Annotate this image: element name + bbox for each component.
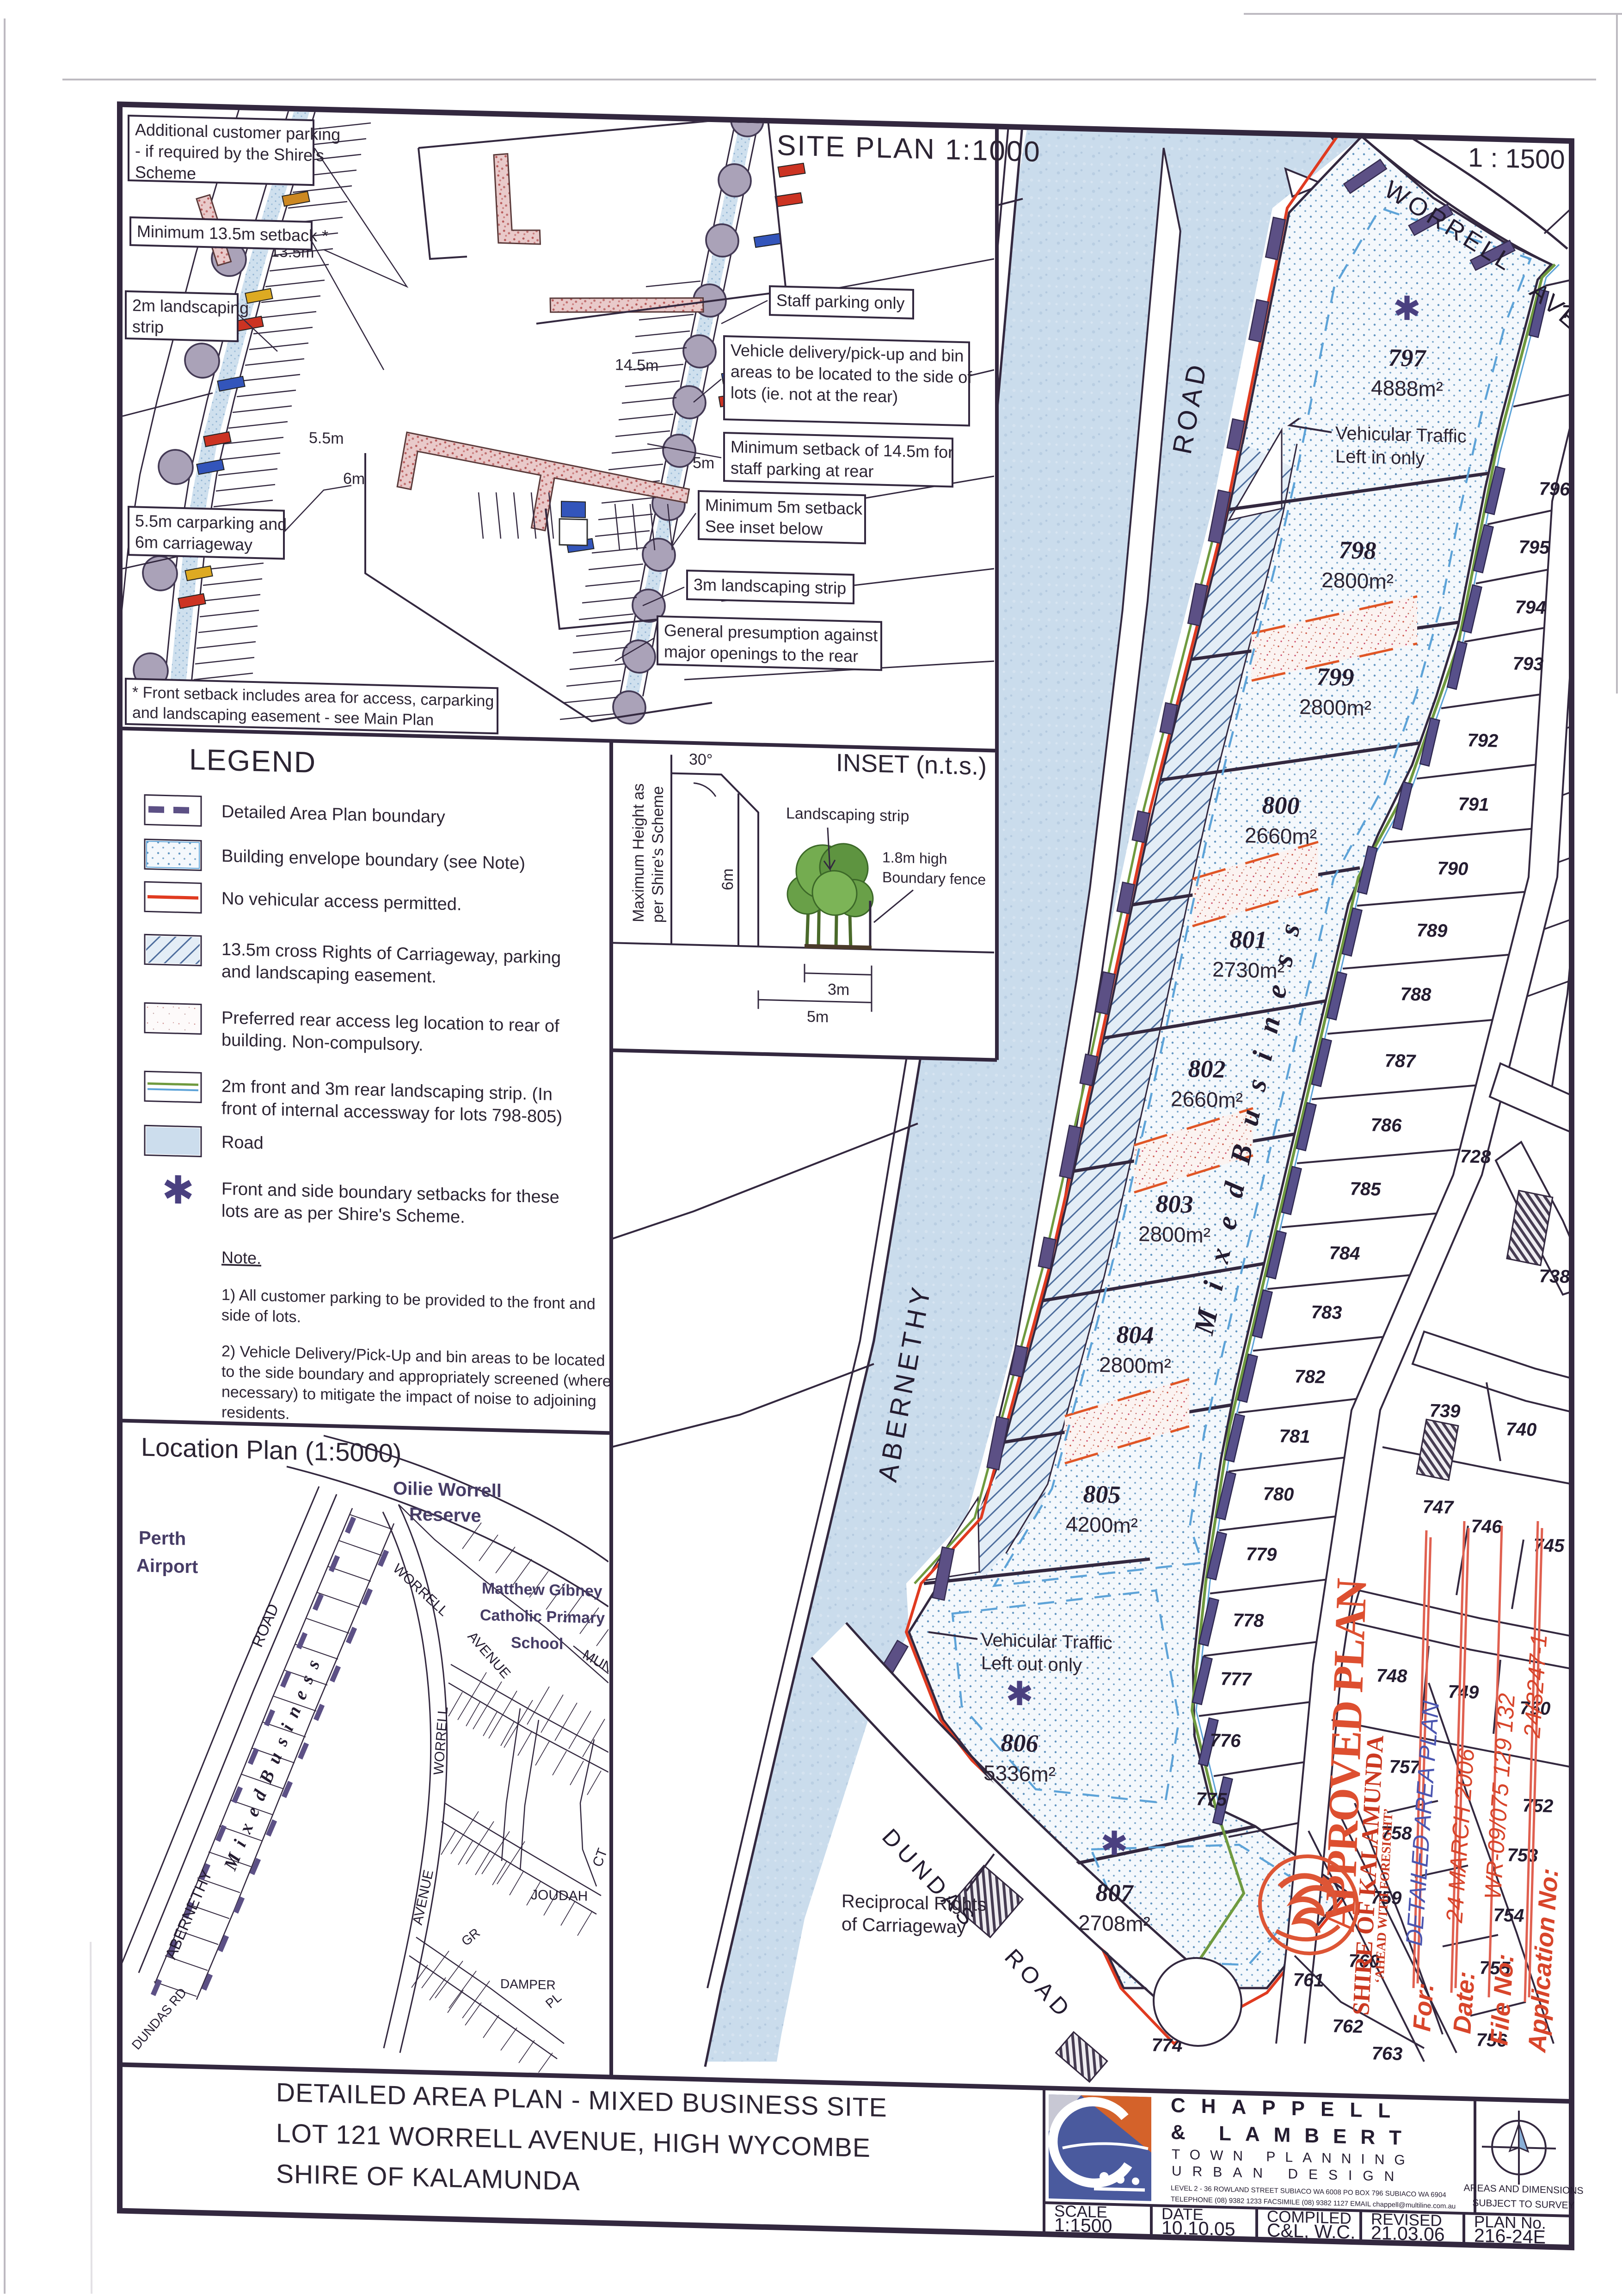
svg-text:802: 802 — [1188, 1055, 1226, 1083]
svg-text:775: 775 — [1196, 1789, 1227, 1810]
svg-text:796: 796 — [1539, 479, 1570, 500]
svg-text:Matthew Gibney: Matthew Gibney — [482, 1579, 602, 1600]
svg-text:Catholic Primary: Catholic Primary — [480, 1606, 605, 1627]
svg-text:DAMPER: DAMPER — [500, 1977, 556, 1992]
svg-text:Note.: Note. — [221, 1248, 261, 1268]
svg-text:Maximum Height as: Maximum Height as — [630, 783, 647, 922]
svg-text:1.8m high: 1.8m high — [882, 849, 947, 867]
svg-text:793: 793 — [1513, 653, 1544, 675]
svg-text:2660m²: 2660m² — [1245, 823, 1317, 849]
svg-text:30°: 30° — [689, 750, 713, 768]
svg-text:2800m²: 2800m² — [1321, 568, 1394, 594]
svg-text:782: 782 — [1295, 1366, 1326, 1387]
svg-text:792: 792 — [1468, 730, 1499, 751]
svg-text:781: 781 — [1279, 1426, 1310, 1447]
svg-text:side of lots.: side of lots. — [221, 1307, 301, 1326]
svg-text:Staff parking only: Staff parking only — [776, 290, 904, 313]
svg-text:21.03.06: 21.03.06 — [1371, 2222, 1445, 2245]
svg-text:Minimum 5m setback: Minimum 5m setback — [705, 495, 863, 518]
svg-text:728: 728 — [1460, 1146, 1491, 1167]
svg-text:5336m²: 5336m² — [983, 1761, 1056, 1786]
svg-text:Road: Road — [221, 1133, 264, 1153]
svg-text:777: 777 — [1221, 1669, 1252, 1690]
svg-text:staff parking at rear: staff parking at rear — [731, 458, 873, 481]
svg-text:787: 787 — [1385, 1050, 1416, 1072]
svg-text:Vehicular Traffic: Vehicular Traffic — [981, 1630, 1112, 1653]
svg-text:LEGEND: LEGEND — [189, 743, 316, 779]
svg-text:2708m²: 2708m² — [1078, 1910, 1150, 1936]
svg-text:748: 748 — [1376, 1665, 1407, 1687]
svg-text:14.5m: 14.5m — [615, 356, 658, 374]
svg-text:4888m²: 4888m² — [1371, 375, 1443, 401]
svg-text:790: 790 — [1438, 858, 1468, 879]
svg-text:2800m²: 2800m² — [1138, 1222, 1210, 1247]
svg-text:Left out only: Left out only — [981, 1653, 1082, 1676]
svg-text:805: 805 — [1083, 1480, 1121, 1509]
svg-text:2800m²: 2800m² — [1099, 1352, 1171, 1378]
svg-text:2660m²: 2660m² — [1171, 1087, 1243, 1112]
svg-text:739: 739 — [1430, 1400, 1461, 1422]
svg-text:746: 746 — [1471, 1516, 1502, 1537]
svg-text:795: 795 — [1519, 537, 1550, 558]
svg-text:6m carriageway: 6m carriageway — [135, 532, 252, 554]
svg-text:798: 798 — [1339, 536, 1376, 565]
svg-text:794: 794 — [1515, 597, 1546, 618]
svg-text:5.5m: 5.5m — [309, 429, 344, 448]
svg-text:747: 747 — [1423, 1497, 1454, 1518]
svg-text:779: 779 — [1246, 1544, 1277, 1565]
svg-text:5m: 5m — [693, 454, 714, 472]
svg-text:Perth: Perth — [139, 1528, 186, 1549]
svg-text:Oilie Worrell: Oilie Worrell — [393, 1478, 502, 1501]
svg-text:See inset below: See inset below — [705, 516, 823, 538]
svg-text:6m: 6m — [719, 868, 737, 890]
svg-text:801: 801 — [1230, 925, 1267, 954]
svg-text:For:: For: — [1408, 1982, 1439, 2032]
svg-text:754: 754 — [1493, 1905, 1524, 1926]
svg-text:Left in only: Left in only — [1335, 446, 1425, 469]
svg-text:SITE PLAN 1:1000: SITE PLAN 1:1000 — [777, 129, 1041, 168]
svg-text:4200m²: 4200m² — [1066, 1512, 1138, 1538]
svg-text:780: 780 — [1263, 1484, 1294, 1505]
svg-text:Scheme: Scheme — [135, 162, 196, 183]
svg-text:5.5m carparking and: 5.5m carparking and — [135, 511, 287, 534]
svg-text:JOUDAH: JOUDAH — [531, 1887, 588, 1904]
svg-text:2800m²: 2800m² — [1299, 694, 1371, 720]
svg-text:C&L, W.C.: C&L, W.C. — [1267, 2219, 1355, 2243]
svg-text:1 : 1500: 1 : 1500 — [1468, 142, 1565, 175]
svg-text:Vehicular Traffic: Vehicular Traffic — [1335, 423, 1467, 447]
svg-text:778: 778 — [1233, 1610, 1264, 1631]
svg-text:Date:: Date: — [1448, 1970, 1480, 2035]
svg-text:791: 791 — [1458, 794, 1489, 815]
svg-text:738: 738 — [1539, 1266, 1570, 1287]
svg-text:797: 797 — [1389, 344, 1427, 372]
svg-text:785: 785 — [1350, 1179, 1381, 1200]
svg-text:✱: ✱ — [1100, 1825, 1128, 1863]
svg-text:3m: 3m — [828, 981, 849, 999]
svg-text:803: 803 — [1156, 1190, 1193, 1218]
svg-text:807: 807 — [1096, 1879, 1134, 1907]
svg-text:Airport: Airport — [136, 1555, 198, 1577]
svg-text:of Carriageway: of Carriageway — [842, 1914, 966, 1938]
svg-text:6m: 6m — [343, 470, 365, 488]
svg-text:788: 788 — [1401, 984, 1432, 1005]
svg-text:Reciprocal Rights: Reciprocal Rights — [842, 1891, 986, 1915]
svg-text:752: 752 — [1523, 1795, 1554, 1817]
svg-text:806: 806 — [1001, 1729, 1038, 1757]
svg-text:INSET (n.t.s.): INSET (n.t.s.) — [836, 749, 987, 780]
svg-text:per Shire's Scheme: per Shire's Scheme — [649, 786, 667, 923]
svg-text:✱: ✱ — [1006, 1675, 1033, 1713]
svg-text:762: 762 — [1333, 2016, 1364, 2037]
svg-text:763: 763 — [1372, 2043, 1403, 2064]
svg-text:3m landscaping strip: 3m landscaping strip — [694, 575, 846, 597]
svg-text:1:1500: 1:1500 — [1054, 2214, 1112, 2237]
svg-text:786: 786 — [1371, 1115, 1402, 1136]
svg-text:740: 740 — [1506, 1419, 1537, 1440]
svg-text:strip: strip — [132, 317, 164, 337]
svg-text:Landscaping strip: Landscaping strip — [786, 804, 909, 825]
svg-text:✱: ✱ — [1393, 290, 1421, 328]
svg-text:Boundary fence: Boundary fence — [882, 869, 986, 888]
svg-text:800: 800 — [1262, 791, 1300, 820]
svg-text:784: 784 — [1329, 1243, 1360, 1264]
svg-text:✱: ✱ — [162, 1169, 194, 1213]
svg-text:residents.: residents. — [221, 1404, 289, 1423]
svg-text:789: 789 — [1417, 920, 1448, 941]
svg-text:10.10.05: 10.10.05 — [1161, 2217, 1235, 2240]
svg-text:2m landscaping: 2m landscaping — [132, 295, 249, 317]
svg-text:776: 776 — [1210, 1730, 1241, 1751]
svg-text:799: 799 — [1317, 663, 1354, 691]
svg-text:5m: 5m — [807, 1008, 829, 1026]
svg-text:783: 783 — [1311, 1302, 1342, 1323]
svg-text:Reserve: Reserve — [409, 1504, 481, 1526]
svg-text:216-24E: 216-24E — [1474, 2225, 1546, 2248]
svg-text:761: 761 — [1293, 1970, 1324, 1991]
svg-text:804: 804 — [1117, 1320, 1154, 1349]
svg-text:School: School — [511, 1634, 563, 1653]
